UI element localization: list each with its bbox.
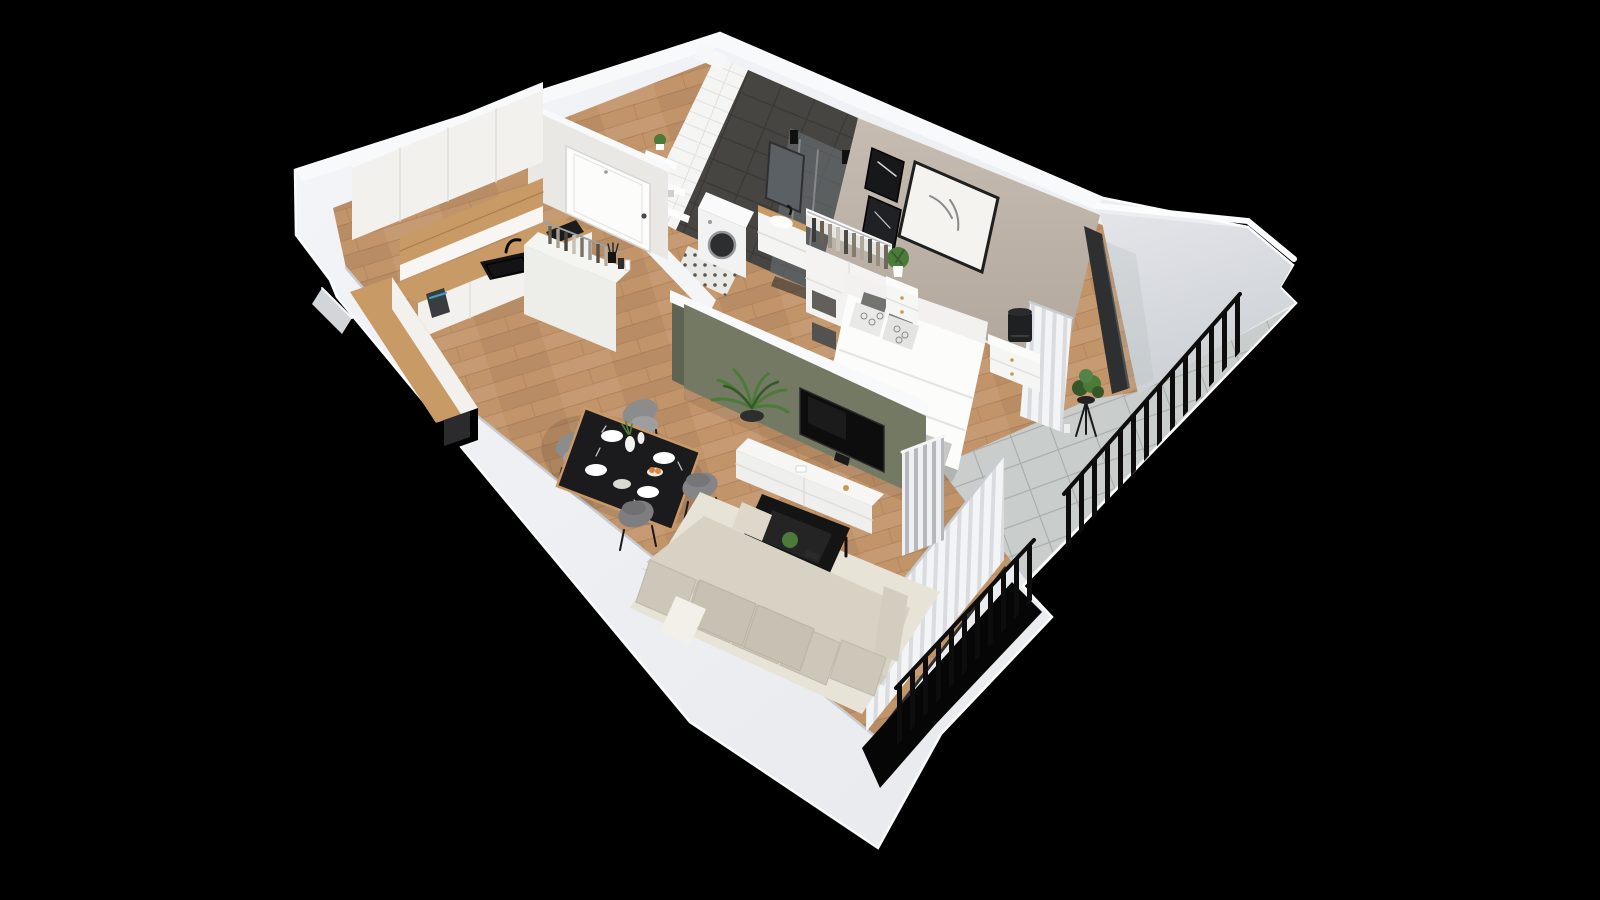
books [618,258,624,269]
marble-plate [613,479,631,489]
washer-dial [708,220,712,224]
vase [625,436,635,452]
door-handle [641,213,646,218]
decor-vase [843,485,849,491]
floor-plan-svg [0,0,1600,900]
orange [649,467,655,473]
floor-plan-render [0,0,1600,900]
peephole [604,170,608,174]
vase [638,432,645,444]
plant-pot [740,410,764,422]
radiator [902,436,944,556]
planter-pot [1077,396,1095,404]
table-lamp [1008,308,1032,342]
wall-end [672,298,684,386]
shower-head [790,130,798,144]
orange [655,468,661,474]
candle [1064,424,1070,433]
decor-books [796,466,806,472]
table-plant [782,532,798,548]
